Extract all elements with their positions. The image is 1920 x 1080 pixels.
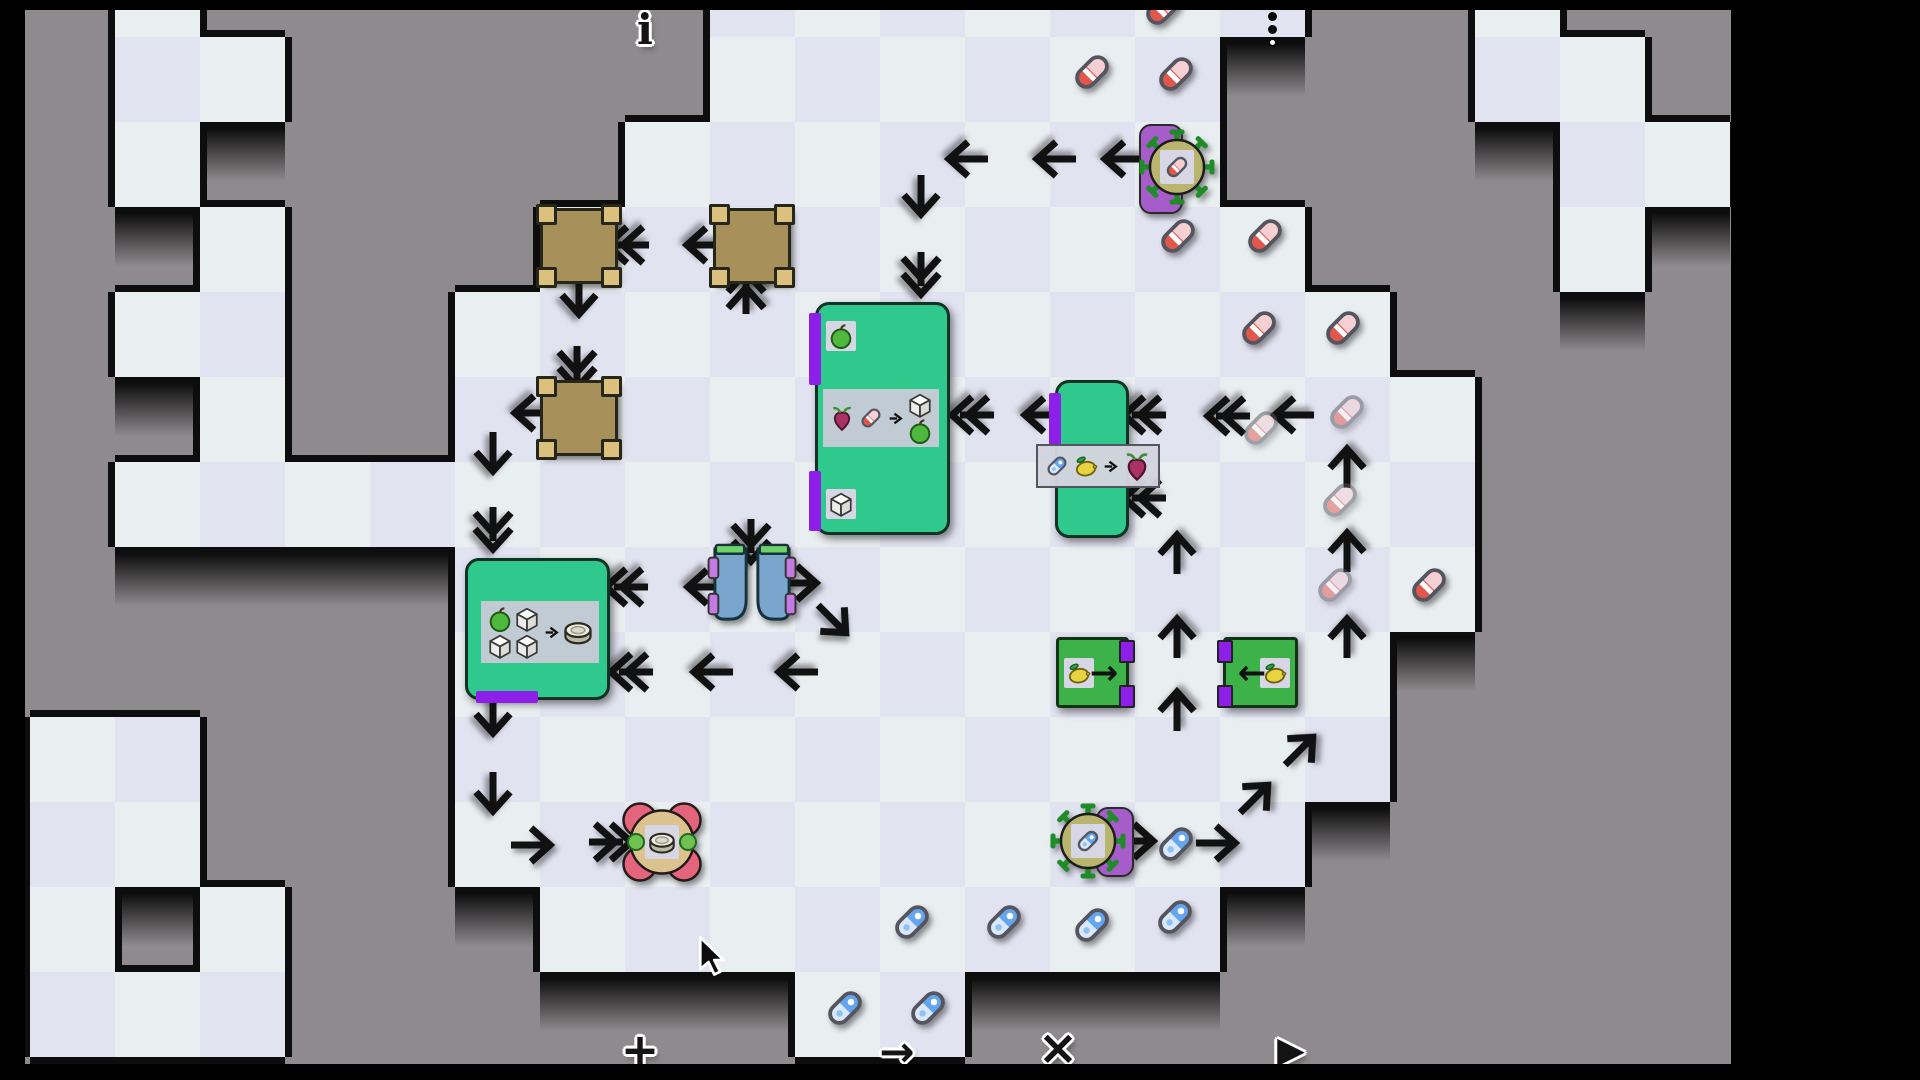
node-direction-icon: ← (1238, 653, 1267, 693)
info-button[interactable]: i (637, 10, 653, 51)
storage-box[interactable] (540, 380, 618, 456)
recipe-output-tablet (563, 617, 593, 647)
box-corner (709, 267, 730, 288)
machine-port (1119, 640, 1135, 663)
storage-box[interactable] (713, 208, 791, 284)
menu-dot-icon (1268, 12, 1277, 21)
box-corner (536, 204, 557, 225)
play-button[interactable]: ▶ (1277, 1033, 1305, 1064)
machine-port (476, 691, 538, 703)
machine-port (1119, 685, 1135, 708)
sender-lemon[interactable]: → (1056, 637, 1129, 708)
recipe-tooltip (1036, 444, 1160, 488)
crafter-pill-lemon-to-beet[interactable] (1055, 380, 1129, 538)
buffer-badge-cube (826, 489, 856, 519)
recipe-input-lemon (1073, 453, 1099, 479)
recipe-panel (823, 389, 939, 447)
close-button[interactable]: × (1038, 1024, 1078, 1064)
recipe-inputs (487, 606, 540, 659)
receiver-lemon[interactable]: ← (1223, 637, 1298, 708)
box-corner (601, 376, 622, 397)
recipe-arrow-icon (543, 624, 560, 641)
game-viewport[interactable]: →← i + → × ▶ (25, 10, 1731, 1064)
box-corner (774, 204, 795, 225)
box-corner (774, 267, 795, 288)
machine-port (809, 313, 821, 385)
recipe-input-beet (829, 405, 855, 431)
box-corner (601, 439, 622, 460)
box-corner (536, 267, 557, 288)
box-corner (536, 376, 557, 397)
splitter-jeans[interactable] (706, 543, 798, 625)
buffer-badge-apple (826, 321, 856, 351)
game-screen: →← i + → × ▶ (0, 0, 1920, 1080)
add-button[interactable]: + (621, 1027, 660, 1064)
crafter-beet-pill-to-sugar-apple[interactable] (815, 302, 950, 535)
recipe-arrow-icon (887, 410, 904, 427)
recipe-input-pill-blue (1044, 453, 1070, 479)
storage-box[interactable] (540, 208, 618, 284)
node-direction-icon: → (1090, 653, 1119, 693)
crafter-apple-sugar-to-tablet[interactable] (465, 558, 610, 700)
machine-port (809, 471, 821, 531)
menu-dot-icon (1268, 25, 1277, 34)
box-corner (709, 204, 730, 225)
menu-dot-icon (1268, 38, 1277, 47)
creature-item-badge-pill-blue (1071, 824, 1105, 858)
recipe-output-beet (1122, 451, 1152, 481)
creature-item-badge-tablet (645, 825, 679, 859)
machine-port (1217, 685, 1233, 708)
step-button[interactable]: → (879, 1031, 914, 1064)
box-corner (601, 267, 622, 288)
box-corner (601, 204, 622, 225)
mouse-cursor-icon (697, 936, 731, 984)
box-corner (536, 439, 557, 460)
recipe-outputs (907, 392, 933, 444)
machine-port (1217, 640, 1233, 663)
machine-port (1049, 393, 1061, 445)
recipe-input-pill-red (858, 405, 884, 431)
recipe-panel (481, 601, 599, 663)
recipe-arrow-icon (1102, 458, 1119, 475)
creature-item-badge-pill-red (1160, 150, 1194, 184)
menu-button[interactable] (1265, 12, 1279, 47)
entity-layer: →← (25, 10, 1731, 1064)
